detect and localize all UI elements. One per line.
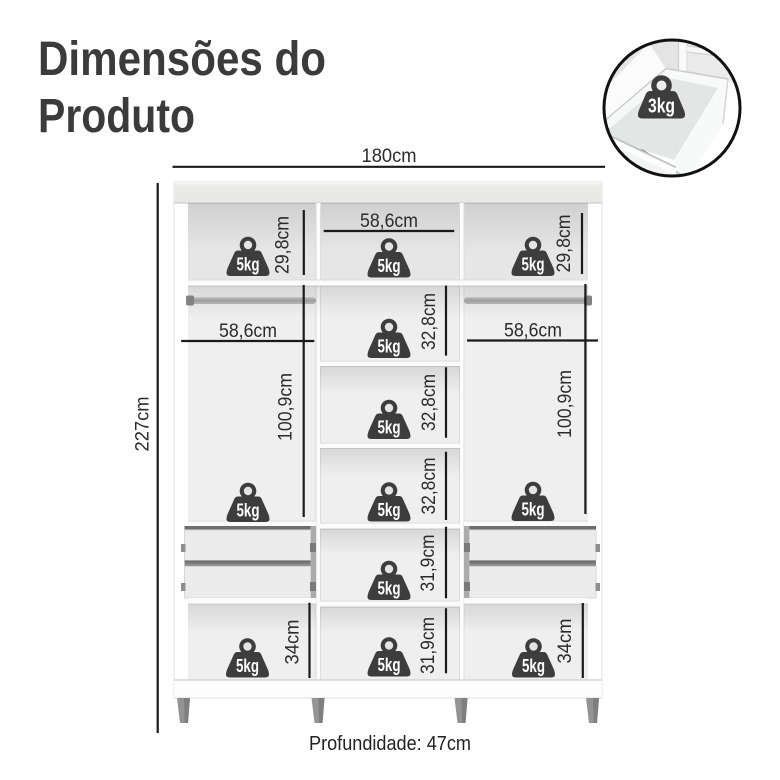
svg-text:100,9cm: 100,9cm [275,373,296,441]
svg-text:58,6cm: 58,6cm [219,321,277,342]
svg-text:29,8cm: 29,8cm [273,216,294,274]
svg-text:227cm: 227cm [133,397,154,452]
svg-text:32,8cm: 32,8cm [419,374,440,431]
svg-text:Dimensões do: Dimensões do [38,33,326,86]
svg-text:31,9cm: 31,9cm [418,617,439,674]
svg-text:32,8cm: 32,8cm [419,293,440,350]
svg-text:180cm: 180cm [362,146,417,167]
svg-text:58,6cm: 58,6cm [360,211,418,232]
svg-text:32,8cm: 32,8cm [419,458,440,515]
svg-text:3kg: 3kg [648,96,675,118]
svg-text:34cm: 34cm [282,620,303,665]
svg-text:Produto: Produto [38,90,195,143]
svg-text:58,6cm: 58,6cm [504,321,562,342]
svg-text:100,9cm: 100,9cm [555,370,576,438]
svg-text:34cm: 34cm [555,619,576,664]
svg-text:Profundidade: 47cm: Profundidade: 47cm [309,733,471,755]
svg-text:31,9cm: 31,9cm [418,535,439,592]
svg-text:29,8cm: 29,8cm [554,215,575,273]
